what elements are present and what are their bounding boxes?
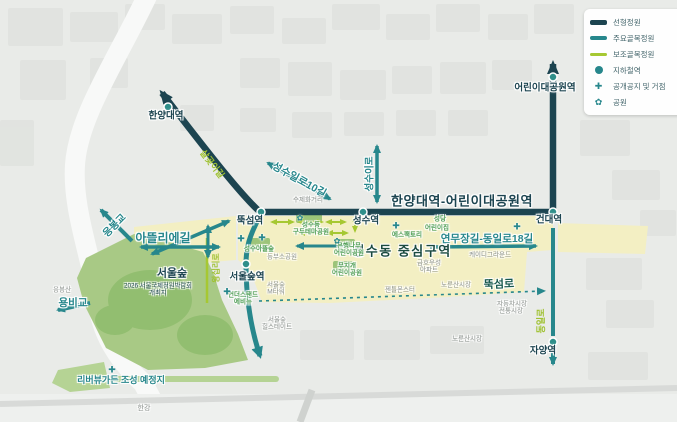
kumho-woosung-apt-label: 금호우성 아파트 bbox=[417, 260, 441, 275]
landmark-line: M타워 bbox=[267, 289, 285, 296]
handmade-shoe-street-label: 수제화거리 bbox=[293, 196, 323, 203]
park-flower-icon: ✿ bbox=[334, 237, 341, 246]
kd-ground-label: 케이디그라운드 bbox=[469, 251, 511, 258]
legend-label: 선형정원 bbox=[613, 17, 641, 28]
seoul-forest-label: 서울숲 bbox=[157, 268, 187, 281]
legend: 선형정원 주요골목정원 보조골목정원 지하철역 ✚ 공개공지 및 거점 ✿ 공원 bbox=[584, 9, 677, 115]
legend-label: 주요골목정원 bbox=[613, 33, 654, 44]
station-label-seongsu: 성수역 bbox=[353, 217, 379, 228]
landmark-line: 아파트 bbox=[417, 267, 441, 274]
landmark-line: 케이디그라운드 bbox=[469, 251, 511, 258]
traditional-market-label: 전통시장 bbox=[499, 307, 523, 314]
station-dot-icon bbox=[590, 66, 607, 74]
legend-row-minor-alley-garden: 보조골목정원 bbox=[590, 46, 677, 62]
rainbow-childrens-park-label: 무지개 어린이공원 bbox=[332, 263, 362, 278]
major-alley-line-icon bbox=[590, 36, 607, 40]
expo-label-line2: 개최지 bbox=[149, 289, 166, 296]
legend-row-major-alley-garden: 주요골목정원 bbox=[590, 30, 677, 46]
landmark-line: 수제화거리 bbox=[293, 196, 323, 203]
station-label-kondae: 건대역 bbox=[536, 216, 562, 227]
han-river-label: 한강 bbox=[138, 405, 151, 413]
minor-alley-line-icon bbox=[590, 53, 607, 56]
park-flower-icon: ✿ bbox=[590, 98, 607, 107]
yongbi-bridge-label: 용비교 bbox=[59, 297, 88, 309]
place-line: 어린이집 bbox=[425, 224, 449, 231]
center-zone-east-lobe bbox=[558, 223, 648, 254]
daycare-label: 어린이집 bbox=[425, 224, 449, 231]
landmark-line: 힐스테이트 bbox=[262, 324, 292, 331]
open-space-plus-icon: ✚ bbox=[237, 234, 245, 245]
station-label-jayang: 자양역 bbox=[530, 347, 556, 358]
legend-label: 공원 bbox=[613, 97, 627, 108]
legend-label: 보조골목정원 bbox=[613, 49, 654, 60]
place-line: 어린이공원 bbox=[332, 270, 362, 277]
dongbu-pocket-park-label: 동부소공원 bbox=[267, 253, 297, 260]
seoul-forest-m-tower-label: 서울숲 M타워 bbox=[267, 282, 285, 297]
open-space-plus-icon: ✚ bbox=[513, 222, 521, 233]
place-line: 에스팩토리 bbox=[392, 231, 422, 238]
legend-row-subway-station: 지하철역 bbox=[590, 62, 677, 78]
legend-row-linear-garden: 선형정원 bbox=[590, 14, 677, 30]
seoul-forest-hillstate-label: 서울숲 힐스테이트 bbox=[262, 317, 292, 332]
open-space-plus-icon: ✚ bbox=[108, 365, 116, 376]
landmark-line: 전통시장 bbox=[499, 307, 523, 314]
s-factory-label: 에스팩토리 bbox=[392, 231, 422, 238]
open-space-plus-icon: ✚ bbox=[392, 221, 400, 232]
place-line: 성수아뜰숲 bbox=[244, 245, 274, 252]
plus-icon: ✚ bbox=[590, 82, 607, 91]
landmark-line: 노룬산시장 bbox=[441, 281, 471, 288]
eungbongsan-label: 응봉산 bbox=[53, 286, 71, 293]
place-line: 구두테마공원 bbox=[293, 229, 329, 236]
legend-label: 공개공지 및 거점 bbox=[613, 81, 665, 92]
understand-avenue-label: 언더스탠드 에비뉴 bbox=[228, 292, 258, 307]
center-zone-label: 성수동 중심구역 bbox=[352, 245, 451, 260]
park-flower-icon: ✿ bbox=[297, 214, 304, 223]
norunsan-market-label-1: 노룬산시장 bbox=[441, 281, 471, 288]
open-space-plus-icon: ✚ bbox=[258, 233, 266, 244]
gentle-monster-label: 젠틀몬스터 bbox=[385, 286, 415, 293]
ttukseom-ro-label: 뚝섬로 bbox=[484, 278, 515, 292]
seongsu-atteul-forest-label: 성수아뜰숲 bbox=[244, 245, 274, 252]
dongil-ro-label: 동일로 bbox=[536, 309, 546, 334]
shoe-theme-park-label: 성수동 구두테마공원 bbox=[293, 222, 329, 237]
legend-row-open-space: ✚ 공개공지 및 거점 bbox=[590, 78, 677, 94]
seongsu-garden-network-map: 선형정원 주요골목정원 보조골목정원 지하철역 ✚ 공개공지 및 거점 ✿ 공원… bbox=[0, 0, 677, 422]
norunsan-market-label-2: 노룬산시장 bbox=[452, 335, 482, 342]
station-label-hanyang-univ: 한양대역 bbox=[149, 112, 184, 123]
wangsimni-ro-label: 왕십리로 bbox=[211, 253, 220, 282]
place-line: 에비뉴 bbox=[228, 299, 258, 306]
riverview-garden-label: 리버뷰가든 조성 예정지 bbox=[77, 375, 165, 385]
landmark-line: 동부소공원 bbox=[267, 253, 297, 260]
linear-garden-route-label: 한양대역-어린이대공원역 bbox=[391, 195, 533, 210]
legend-label: 지하철역 bbox=[613, 65, 641, 76]
seongsu-iro-label: 성수이로 bbox=[366, 157, 377, 192]
map-base-layer bbox=[0, 0, 677, 422]
legend-row-park: ✿ 공원 bbox=[590, 94, 677, 110]
landmark-line: 젠틀몬스터 bbox=[385, 286, 415, 293]
open-space-plus-icon: ✚ bbox=[223, 287, 231, 298]
yeonmujang-road-label: 연무장길-동일로18길 bbox=[441, 233, 533, 245]
station-label-childrens-grand-park: 어린이대공원역 bbox=[514, 84, 575, 95]
atelier-gil-label: 아뜰리에길 bbox=[135, 232, 190, 246]
landmark-line: 노룬산시장 bbox=[452, 335, 482, 342]
station-label-ttukseom: 뚝섬역 bbox=[237, 217, 263, 228]
cathedral-label: 성당 bbox=[434, 215, 446, 222]
station-dot-childrens-grand-park bbox=[549, 73, 557, 81]
linear-garden-line-icon bbox=[590, 20, 607, 25]
place-line: 성당 bbox=[434, 215, 446, 222]
station-dot-seoul-forest bbox=[242, 260, 250, 268]
station-label-seoul-forest: 서울숲역 bbox=[230, 273, 265, 284]
place-line: 어린이공원 bbox=[334, 250, 364, 257]
